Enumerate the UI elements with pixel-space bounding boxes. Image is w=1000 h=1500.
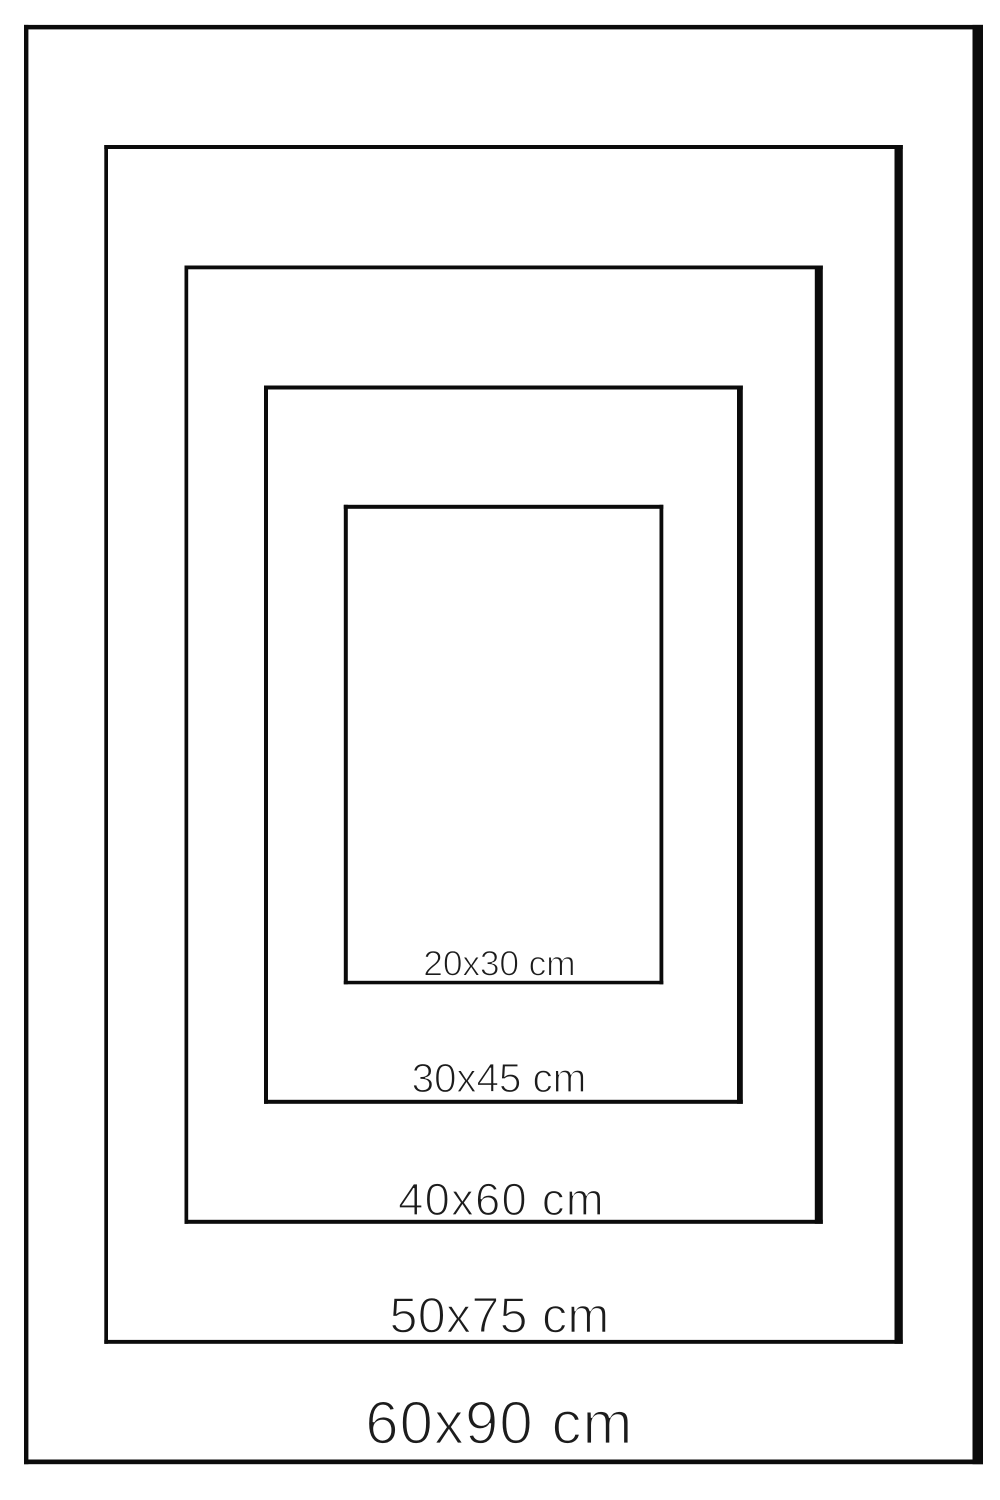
svg-text:30x45 cm: 30x45 cm: [412, 1055, 587, 1101]
svg-text:40x60 cm: 40x60 cm: [398, 1174, 605, 1225]
svg-text:50x75 cm: 50x75 cm: [390, 1286, 610, 1343]
svg-text:60x90 cm: 60x90 cm: [365, 1390, 633, 1457]
svg-text:20x30 cm: 20x30 cm: [423, 944, 575, 984]
